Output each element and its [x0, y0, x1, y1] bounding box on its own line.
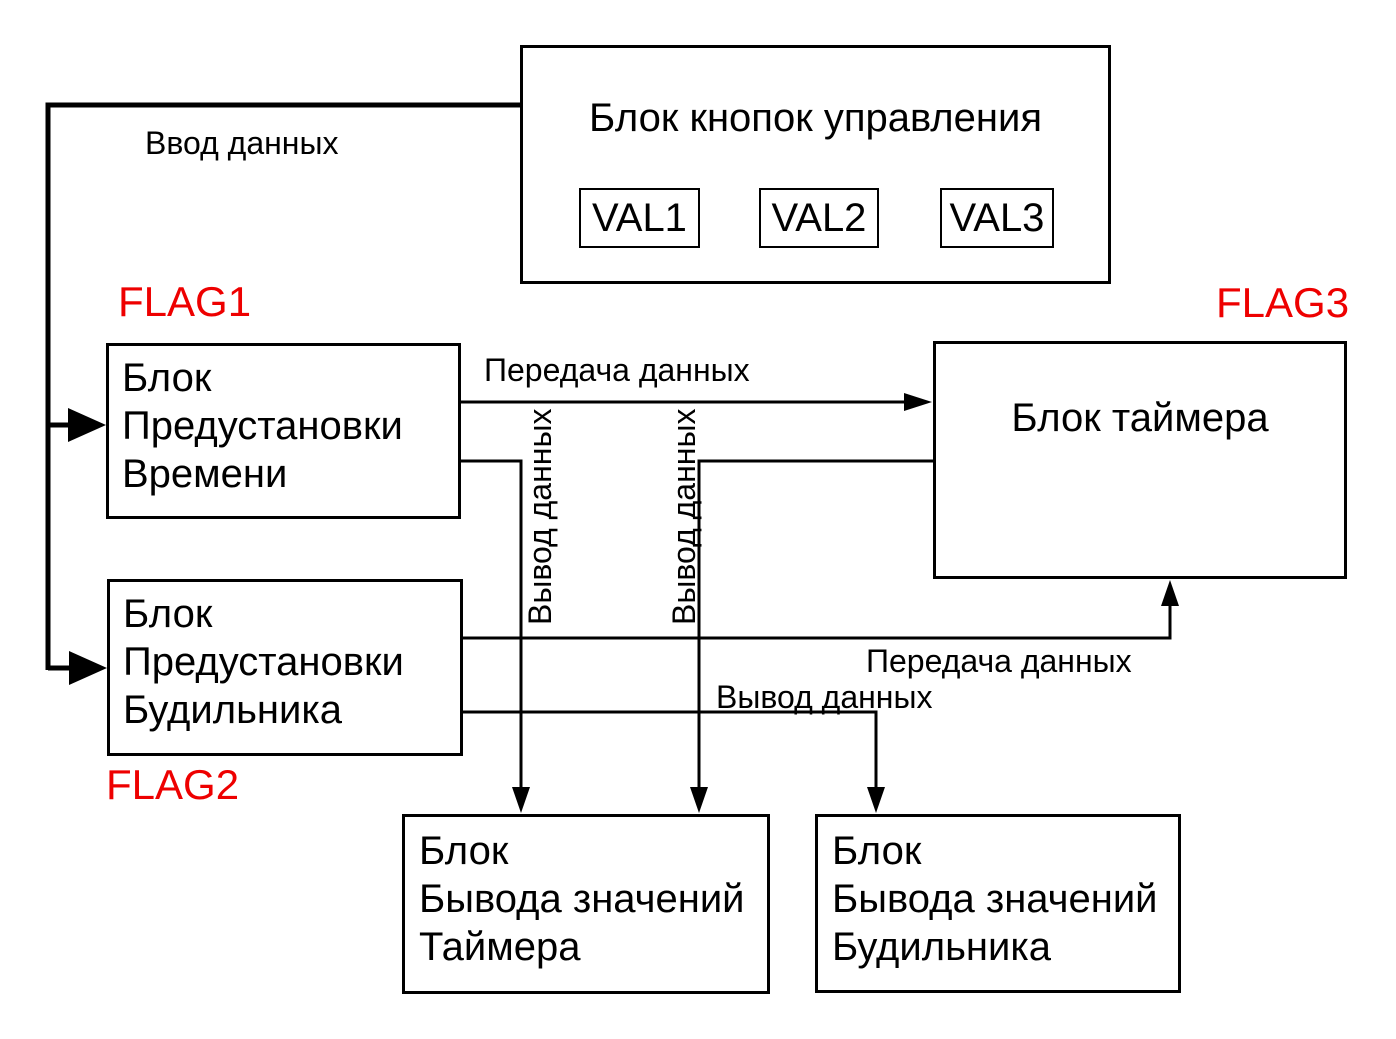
arrowhead-into-timer-bottom — [1161, 580, 1179, 606]
alarm-output-line2: Бывода значений — [832, 875, 1178, 923]
time-preset-line1: Блок — [122, 354, 458, 402]
flag1-label: FLAG1 — [118, 279, 251, 325]
edge-transfer-alarm-to-timer — [461, 606, 1170, 638]
edge-output-alarm-to-alarm-display — [461, 712, 876, 792]
timer-output-line3: Таймера — [419, 923, 767, 971]
transfer-data-top-label: Передача данных — [484, 352, 750, 388]
alarm-preset-line3: Будильника — [123, 686, 460, 734]
diagram-canvas: Блок кнопок управления VAL1 VAL2 VAL3 Бл… — [0, 0, 1396, 1039]
control-buttons-block: Блок кнопок управления VAL1 VAL2 VAL3 — [520, 45, 1111, 284]
alarm-output-block: Блок Бывода значений Будильника — [815, 814, 1181, 993]
transfer-data-bottom-label: Передача данных — [866, 643, 1132, 679]
edge-output-timer-to-timer-display — [699, 461, 933, 792]
timer-output-line1: Блок — [419, 827, 767, 875]
arrowhead-into-time-preset — [68, 408, 106, 442]
timer-output-block: Блок Бывода значений Таймера — [402, 814, 770, 994]
output-data-bottom-label: Вывод данных — [716, 679, 932, 715]
control-buttons-title: Блок кнопок управления — [523, 94, 1108, 142]
output-data-vertical-left-label: Вывод данных — [522, 411, 558, 625]
alarm-preset-block: Блок Предустановки Будильника — [107, 579, 463, 756]
timer-block: Блок таймера — [933, 341, 1347, 579]
arrowhead-into-timer-left — [904, 393, 932, 411]
flag3-label: FLAG3 — [1216, 280, 1349, 326]
val3-box: VAL3 — [940, 188, 1054, 248]
alarm-output-line1: Блок — [832, 827, 1178, 875]
val1-box: VAL1 — [579, 188, 700, 248]
alarm-output-line3: Будильника — [832, 923, 1178, 971]
arrowhead-into-alarm-output — [867, 787, 885, 813]
output-data-vertical-right-label: Вывод данных — [666, 411, 702, 625]
time-preset-block: Блок Предустановки Времени — [106, 343, 461, 519]
arrowhead-into-timer-output-2 — [690, 787, 708, 813]
time-preset-line3: Времени — [122, 450, 458, 498]
arrowhead-into-timer-output-1 — [512, 787, 530, 813]
flag2-label: FLAG2 — [106, 762, 239, 808]
arrowhead-into-alarm-preset — [69, 651, 107, 685]
alarm-preset-line2: Предустановки — [123, 638, 460, 686]
alarm-preset-line1: Блок — [123, 590, 460, 638]
timer-output-line2: Бывода значений — [419, 875, 767, 923]
input-data-label: Ввод данных — [145, 125, 338, 161]
time-preset-line2: Предустановки — [122, 402, 458, 450]
val2-box: VAL2 — [759, 188, 879, 248]
timer-block-title: Блок таймера — [936, 394, 1344, 442]
edge-output-time-to-timer-display — [461, 461, 521, 792]
